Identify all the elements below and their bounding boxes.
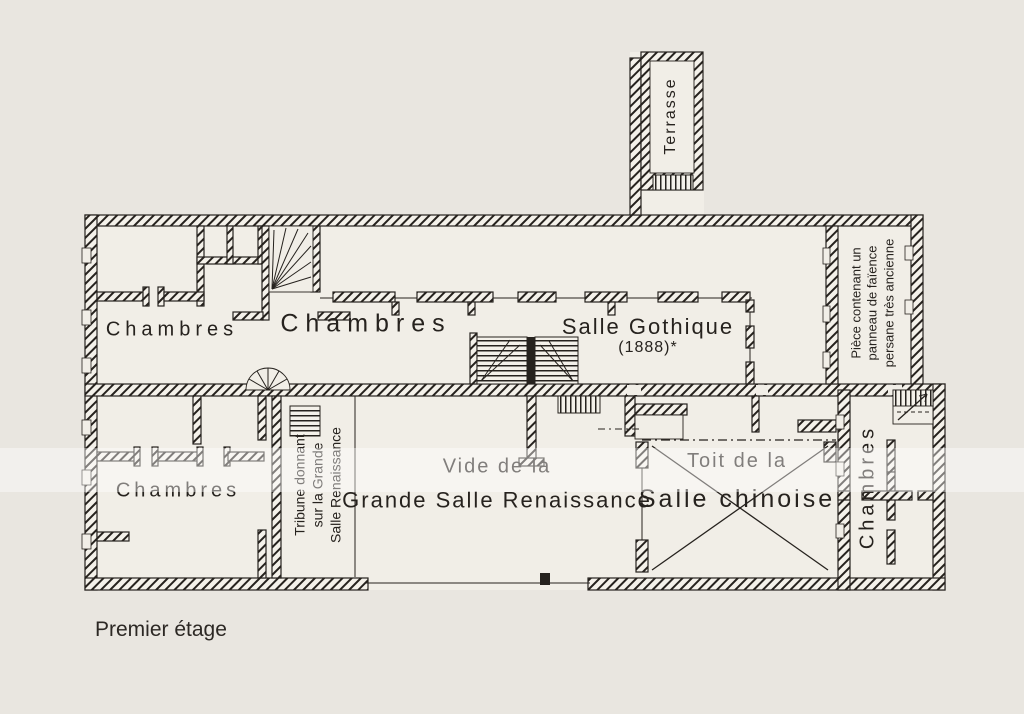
room-label-tribune: Tribune donnant sur la Grande Salle Rena… bbox=[291, 427, 346, 543]
toit-line1: Toit de la bbox=[639, 444, 835, 478]
salle-gothique-year: (1888)* bbox=[562, 339, 734, 357]
room-label-chambres-right: Chambres bbox=[857, 425, 880, 549]
vide-line2: Grande Salle Renaissance bbox=[342, 482, 652, 517]
toit-line2: Salle chinoise bbox=[639, 478, 835, 521]
tribune-line1: Tribune donnant bbox=[291, 427, 309, 543]
right-stair-icon bbox=[893, 390, 933, 424]
piece-line1: Pièce contenant un bbox=[849, 239, 865, 368]
room-label-toit-chinoise: Toit de la Salle chinoise bbox=[639, 444, 835, 521]
room-label-piece-faience: Pièce contenant un panneau de faïence pe… bbox=[849, 239, 898, 368]
room-label-chambres-top-left: Chambres bbox=[106, 319, 238, 342]
room-label-vide: Vide de la Grande Salle Renaissance bbox=[342, 450, 652, 517]
room-label-chambres-bottom-left: Chambres bbox=[116, 480, 240, 503]
piece-line2: panneau de faïence bbox=[865, 239, 881, 368]
piece-line3: persane très ancienne bbox=[881, 239, 897, 368]
salle-gothique-name: Salle Gothique bbox=[562, 314, 734, 339]
room-label-terrasse: Terrasse bbox=[662, 77, 680, 154]
room-label-salle-gothique: Salle Gothique (1888)* bbox=[562, 314, 734, 358]
tribune-line2: sur la Grande bbox=[309, 427, 327, 543]
vide-line1: Vide de la bbox=[342, 450, 652, 482]
terrasse-stair-icon bbox=[653, 175, 693, 190]
plan-caption: Premier étage bbox=[95, 618, 227, 642]
spiral-stair-top-icon bbox=[269, 226, 313, 292]
bottom-wall-stub bbox=[540, 573, 550, 585]
scanned-floor-plan-page: Terrasse Chambres Chambres Salle Gothiqu… bbox=[0, 0, 1024, 714]
room-label-chambres-top-mid: Chambres bbox=[280, 310, 451, 339]
south-balcony-stair-icon bbox=[558, 396, 600, 413]
